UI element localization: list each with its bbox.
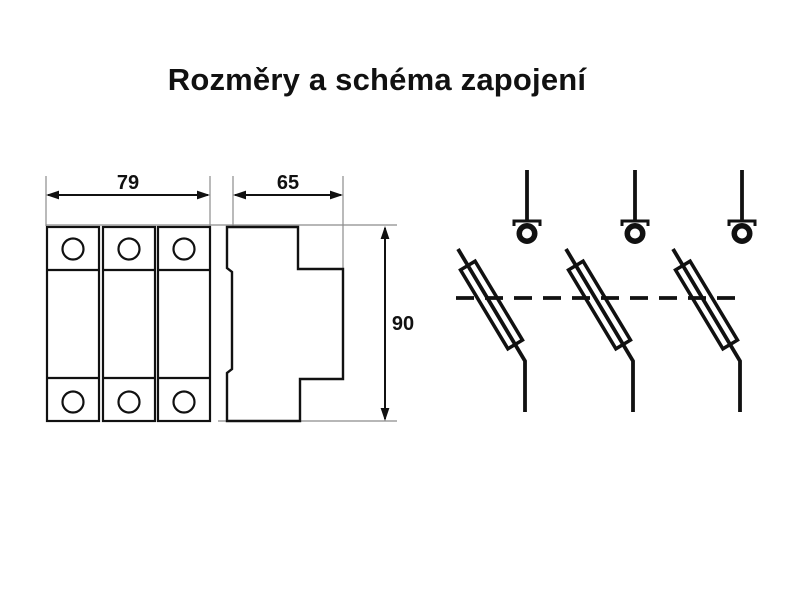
- terminal-screw-icon: [119, 239, 140, 260]
- dimension-label-width: 79: [117, 172, 139, 194]
- terminal-screw-icon: [63, 392, 84, 413]
- arrow-right-icon: [197, 191, 210, 200]
- module-3: [158, 227, 210, 421]
- terminal-screw-icon: [63, 239, 84, 260]
- side-view-profile: [227, 227, 343, 421]
- module-1: [47, 227, 99, 421]
- dimension-label-height: 90: [392, 313, 414, 335]
- front-view: [47, 227, 210, 421]
- arrow-down-icon: [381, 408, 390, 421]
- wiring-schematic: [456, 170, 755, 412]
- dimension-height: 90: [381, 226, 415, 421]
- fuse-pole-3: [673, 170, 755, 412]
- technical-drawing-page: Rozměry a schéma zapojení 79 65: [0, 0, 800, 600]
- arrow-left-icon: [233, 191, 246, 200]
- terminal-screw-icon: [119, 392, 140, 413]
- page-title: Rozměry a schéma zapojení: [168, 62, 588, 97]
- module-2: [103, 227, 155, 421]
- arrow-right-icon: [330, 191, 343, 200]
- arrow-up-icon: [381, 226, 390, 239]
- terminal-screw-icon: [174, 392, 195, 413]
- fuse-pole-1: [458, 170, 540, 412]
- terminal-screw-icon: [174, 239, 195, 260]
- dimension-side-depth: 65: [233, 172, 343, 199]
- arrow-left-icon: [46, 191, 59, 200]
- dimension-front-width: 79: [46, 172, 210, 199]
- drawing-canvas: Rozměry a schéma zapojení 79 65: [0, 0, 800, 600]
- dimension-label-depth: 65: [277, 172, 299, 194]
- fuse-pole-2: [566, 170, 648, 412]
